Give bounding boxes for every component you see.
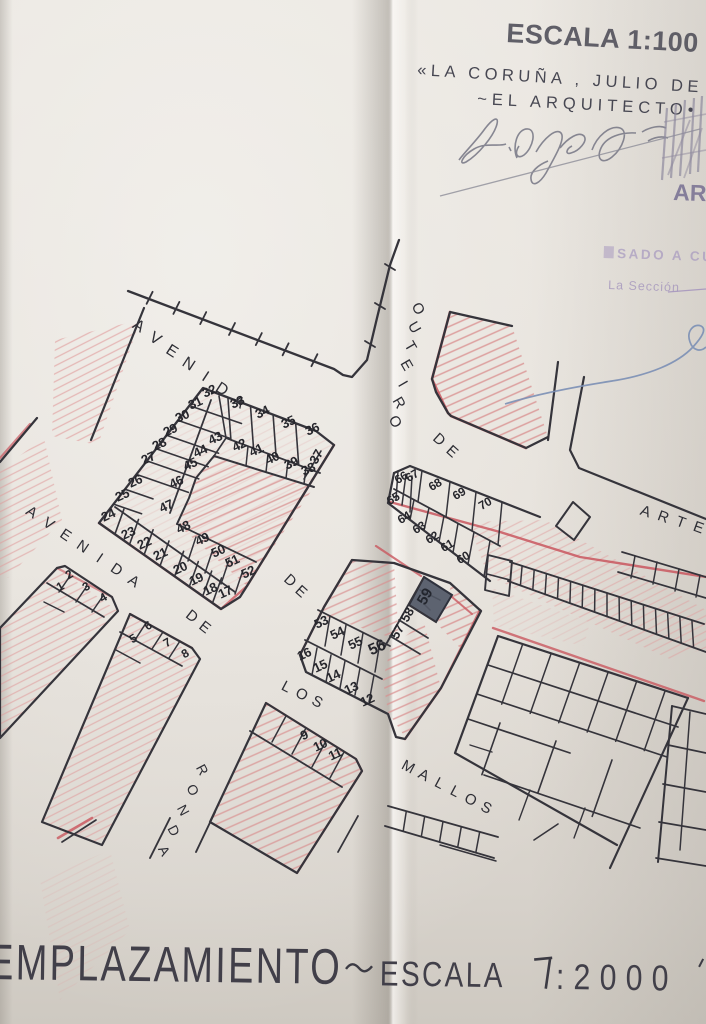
svg-text::2000: :2000 [556, 957, 678, 999]
svg-text:ARC: ARC [673, 179, 706, 207]
svg-text:EMPLAZAMIENTO: EMPLAZAMIENTO [0, 935, 342, 995]
svg-text:ESCALA: ESCALA [380, 953, 505, 994]
